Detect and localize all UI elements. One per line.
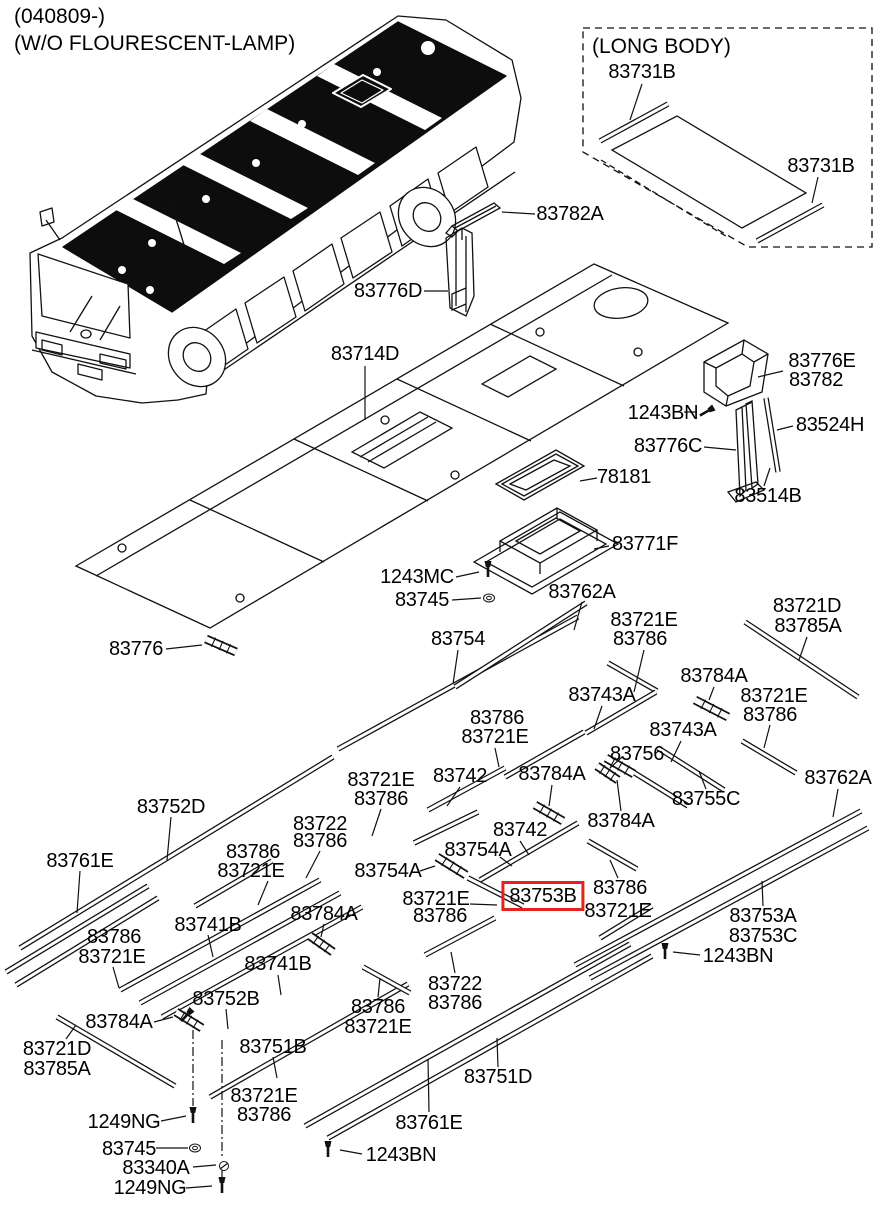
part-label-83721D-61: 83721D [23, 1039, 91, 1059]
part-label-83771F-12: 83771F [612, 534, 678, 554]
part-label-83753C-58: 83753C [729, 926, 797, 946]
part-label-1249NG-70: 1249NG [88, 1112, 161, 1132]
part-label-1249NG-73: 1249NG [114, 1178, 187, 1198]
part-label-1243BN-76: 1243BN [366, 1145, 436, 1165]
part-label-83782-6: 83782 [789, 370, 843, 390]
part-label-1243BN-59: 1243BN [703, 946, 773, 966]
part-label-83721D-18: 83721D [773, 596, 841, 616]
part-label-83721E-54: 83721E [78, 947, 145, 967]
part-label-83755C-35: 83755C [672, 789, 740, 809]
inset-title: (LONG BODY) [592, 35, 731, 59]
part-label-83762A-36: 83762A [804, 768, 871, 788]
small-parts [446, 203, 768, 594]
nut-icon [190, 1144, 201, 1152]
part-label-83742-30: 83742 [433, 766, 487, 786]
part-label-83731B-1: 83731B [787, 156, 854, 176]
part-label-83786-38: 83786 [293, 831, 347, 851]
part-label-83786-65: 83786 [428, 993, 482, 1013]
screw-icon [219, 1177, 226, 1193]
part-label-83340A-72: 83340A [122, 1158, 189, 1178]
part-label-83786-25: 83786 [743, 705, 797, 725]
part-label-83785A-62: 83785A [23, 1059, 90, 1079]
part-label-83776E-5: 83776E [788, 351, 855, 371]
part-label-83786-43: 83786 [226, 842, 280, 862]
part-label-83524H-8: 83524H [796, 415, 864, 435]
part-label-83721E-68: 83721E [230, 1086, 297, 1106]
part-label-83776D-3: 83776D [354, 281, 422, 301]
part-label-83741B-52: 83741B [174, 915, 241, 935]
part-label-83785A-19: 83785A [774, 616, 841, 636]
part-label-83745-14: 83745 [395, 590, 449, 610]
part-label-83721E-50: 83721E [584, 901, 651, 921]
header: (040809-) (W/O FLOURESCENT-LAMP) [14, 4, 295, 58]
part-label-83721E-67: 83721E [344, 1017, 411, 1037]
part-label-83786-66: 83786 [351, 997, 405, 1017]
part-label-83721E-16: 83721E [610, 610, 677, 630]
part-label-83784A-23: 83784A [680, 666, 747, 686]
part-label-83786-47: 83786 [413, 906, 467, 926]
part-label-83752B-56: 83752B [192, 989, 259, 1009]
part-label-83742-39: 83742 [493, 820, 547, 840]
screw-icon [325, 1141, 332, 1157]
screw-icon [190, 1107, 197, 1123]
part-label-83786-69: 83786 [237, 1105, 291, 1125]
part-label-83776C-9: 83776C [634, 436, 702, 456]
part-label-83754-20: 83754 [431, 629, 485, 649]
part-label-83753A-57: 83753A [729, 906, 796, 926]
part-label-83721E-27: 83721E [461, 727, 528, 747]
part-label-83784A-31: 83784A [518, 764, 585, 784]
part-label-83743A-28: 83743A [649, 720, 716, 740]
part-label-83741B-55: 83741B [244, 954, 311, 974]
part-label-83753B-48: 83753B [501, 881, 584, 911]
part-label-83786-33: 83786 [354, 789, 408, 809]
part-label-1243BN-7: 1243BN [628, 403, 698, 423]
part-label-1243MC-13: 1243MC [380, 567, 454, 587]
part-label-83714D-4: 83714D [331, 344, 399, 364]
part-label-83751B-63: 83751B [239, 1037, 306, 1057]
part-label-78181-10: 78181 [597, 467, 651, 487]
part-label-83784A-60: 83784A [85, 1012, 152, 1032]
part-label-83782A-2: 83782A [536, 204, 603, 224]
part-label-83514B-11: 83514B [734, 486, 801, 506]
part-label-83784A-45: 83784A [587, 811, 654, 831]
part-label-83786-17: 83786 [613, 629, 667, 649]
part-label-83786-53: 83786 [87, 927, 141, 947]
part-label-83756-29: 83756 [610, 744, 664, 764]
nut-icon [484, 594, 495, 602]
part-label-83745-71: 83745 [102, 1139, 156, 1159]
part-label-83762A-15: 83762A [548, 582, 615, 602]
part-label-83722-64: 83722 [428, 974, 482, 994]
part-label-83761E-42: 83761E [46, 851, 113, 871]
bus-illustration [30, 16, 521, 403]
part-label-83786-49: 83786 [593, 878, 647, 898]
parts-diagram-page: (040809-) (W/O FLOURESCENT-LAMP) (LONG B… [0, 0, 886, 1211]
part-label-83754A-40: 83754A [444, 840, 511, 860]
part-label-83752D-34: 83752D [137, 797, 205, 817]
part-label-83784A-51: 83784A [290, 904, 357, 924]
part-label-83731B-0: 83731B [608, 62, 675, 82]
screw-icon [698, 404, 715, 418]
part-label-83776-21: 83776 [109, 639, 163, 659]
part-label-83751D-74: 83751D [464, 1067, 532, 1087]
part-label-83721E-32: 83721E [347, 770, 414, 790]
header-variant: (W/O FLOURESCENT-LAMP) [14, 31, 295, 58]
header-revision: (040809-) [14, 4, 295, 31]
part-label-83786-26: 83786 [470, 708, 524, 728]
part-label-83721E-24: 83721E [740, 686, 807, 706]
part-label-83754A-41: 83754A [354, 861, 421, 881]
part-label-83743A-22: 83743A [568, 685, 635, 705]
part-label-83721E-44: 83721E [217, 861, 284, 881]
screw-icon [662, 943, 669, 959]
part-label-83761E-75: 83761E [395, 1113, 462, 1133]
